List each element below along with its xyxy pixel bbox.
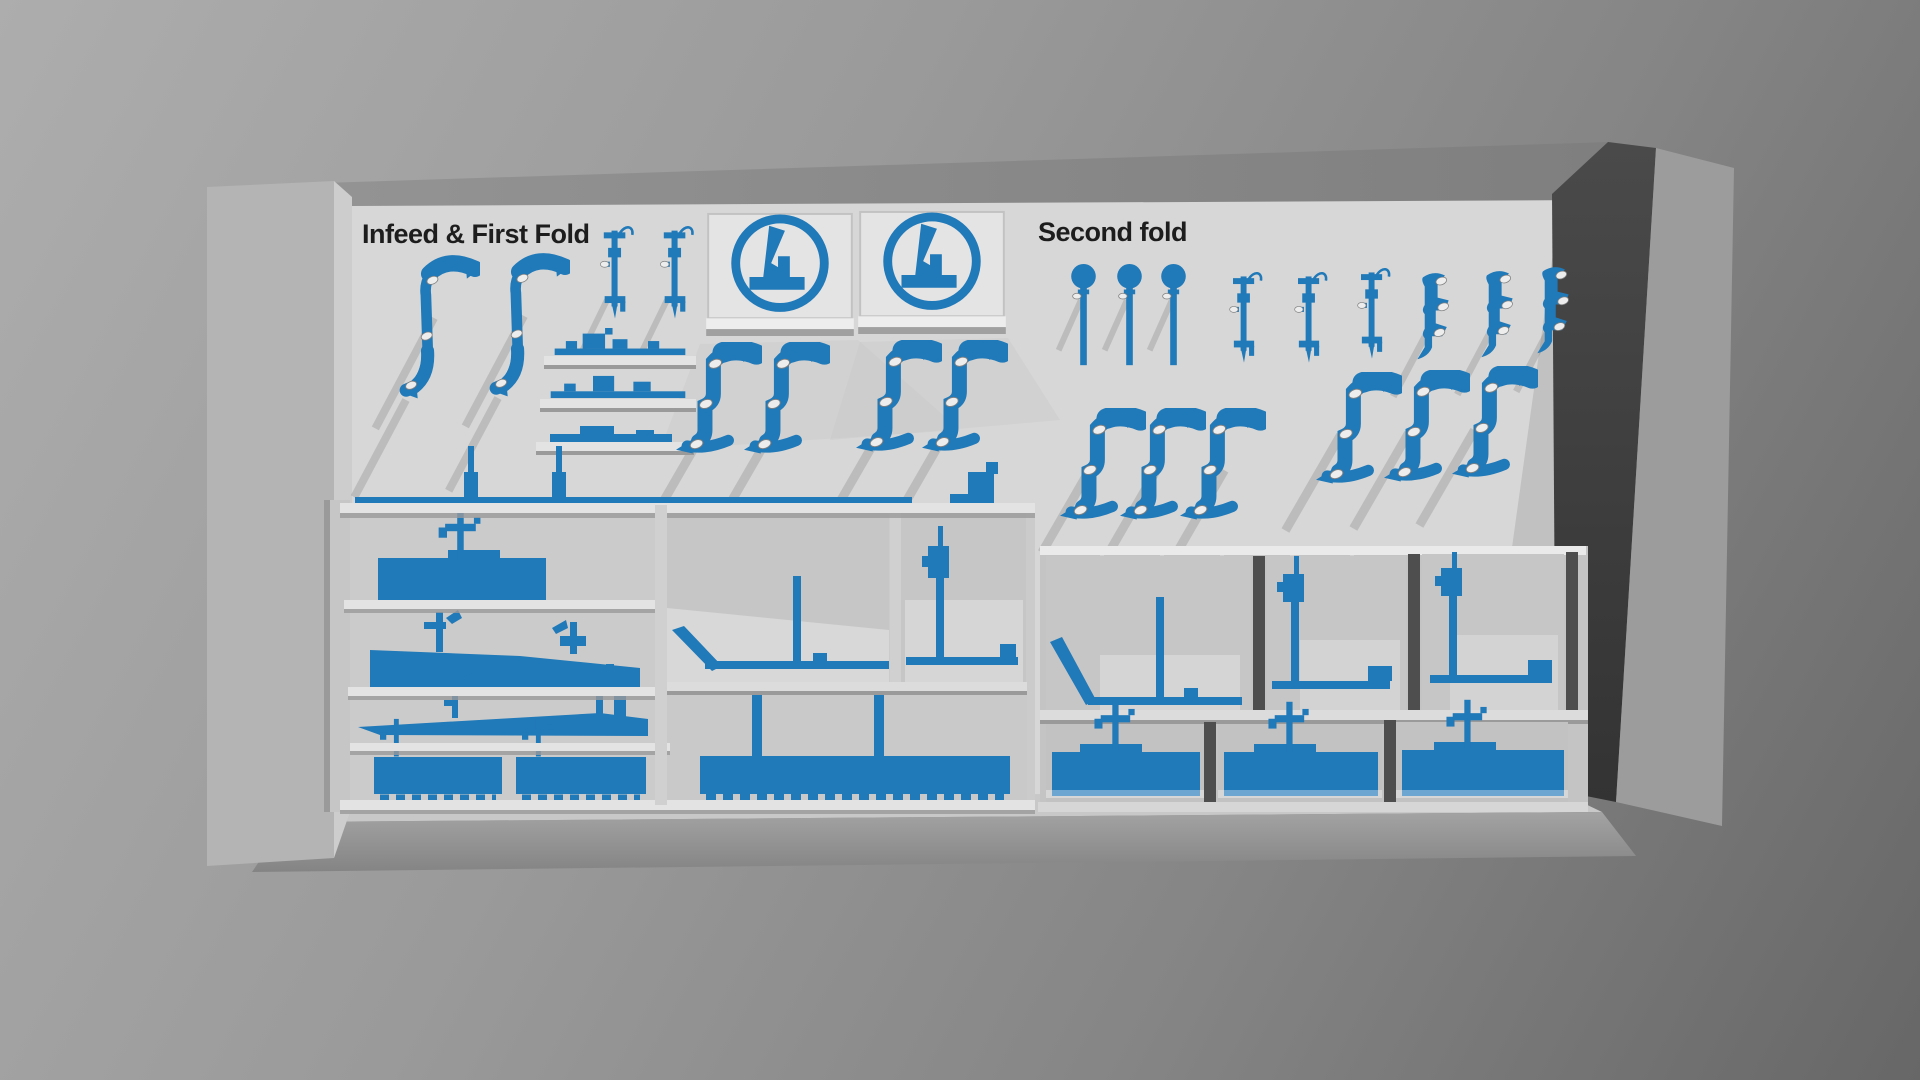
second-fold-cabinet [1038,546,1588,812]
crank-panel-1 [706,214,854,336]
comb-tray-1 [374,757,502,798]
cabinet-bottom-ledge [1038,802,1588,812]
fitting-shelf-2 [540,399,696,408]
label-infeed-first-fold: Infeed & First Fold [362,219,590,249]
cabinet-divider-2 [1408,554,1420,712]
label-second-fold: Second fold [1038,217,1187,247]
left-pillar [207,181,334,866]
divider-m [890,513,901,685]
unit-left-panel [330,500,350,812]
shelf-unit [324,500,1035,814]
comb-tray-2 [516,757,646,798]
base-plate-3 [1402,742,1564,796]
mounting-rail [355,497,912,504]
crank-panel-2 [858,212,1006,334]
tray-2-reflection [1218,790,1382,798]
cabinet-divider-1 [1253,556,1265,712]
fitting-shelf-1 [544,356,696,365]
mid-ledge-m [667,682,1027,691]
3d-viewport[interactable]: Infeed & First Fold Second fold [0,0,1920,1080]
tray-3-reflection [1396,790,1568,798]
ceiling [290,142,1652,207]
cabinet-divider-3 [1566,552,1578,712]
tray-1-reflection [1046,790,1204,798]
cabinet-bottom-divider-1 [1204,722,1216,804]
shadow-board-scene: Infeed & First Fold Second fold [0,0,1920,1080]
fitting-shelf-1-shadow [544,365,696,369]
cabinet-bottom-divider-2 [1384,720,1396,804]
compartment-m2-light [905,600,1023,682]
floor-front [252,812,1636,872]
mid-ledge-m-shadow [667,691,1027,695]
fitting-shelf-2-shadow [540,408,696,412]
cabinet-top-frame [1040,546,1586,555]
middle-compartments [667,513,1027,800]
